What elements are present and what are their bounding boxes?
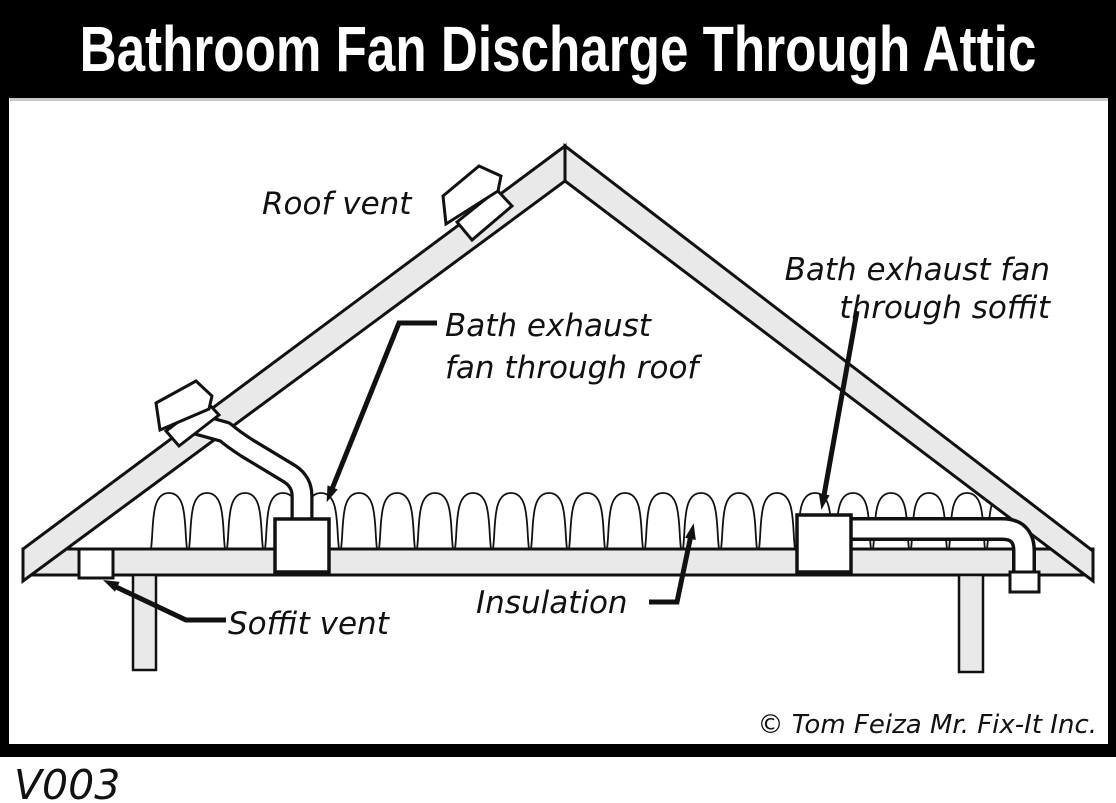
duct-soffit-outlet	[1010, 572, 1039, 592]
label-bath-fan-soffit-line2: through soffit	[839, 290, 1051, 326]
leader-bath-fan-soffit	[823, 311, 857, 501]
wall-stud-right	[959, 575, 983, 672]
label-insulation: Insulation	[476, 585, 628, 621]
bath-fan-box-right	[797, 515, 851, 572]
figure-code: V003	[14, 761, 120, 803]
attic-floor	[23, 549, 1093, 575]
figure-page: Bathroom Fan Discharge Through Attic	[0, 0, 1116, 803]
copyright-note: © Tom Feiza Mr. Fix-It Inc.	[758, 710, 1098, 740]
leader-bath-fan-roof	[330, 323, 437, 494]
leader-soffit-vent	[114, 586, 226, 620]
attic-diagram: Roof vent Bath exhaust fan through roof …	[0, 0, 1116, 803]
bath-fan-box-left	[275, 519, 329, 572]
label-bath-fan-soffit-line1: Bath exhaust fan	[785, 252, 1050, 288]
soffit-vent-opening	[79, 549, 113, 578]
label-bath-fan-roof-line2: fan through roof	[445, 350, 702, 386]
wall-stud-left	[133, 575, 156, 670]
label-soffit-vent: Soffit vent	[228, 606, 391, 642]
label-bath-fan-roof-line1: Bath exhaust	[445, 308, 653, 344]
label-roof-vent: Roof vent	[262, 186, 413, 222]
